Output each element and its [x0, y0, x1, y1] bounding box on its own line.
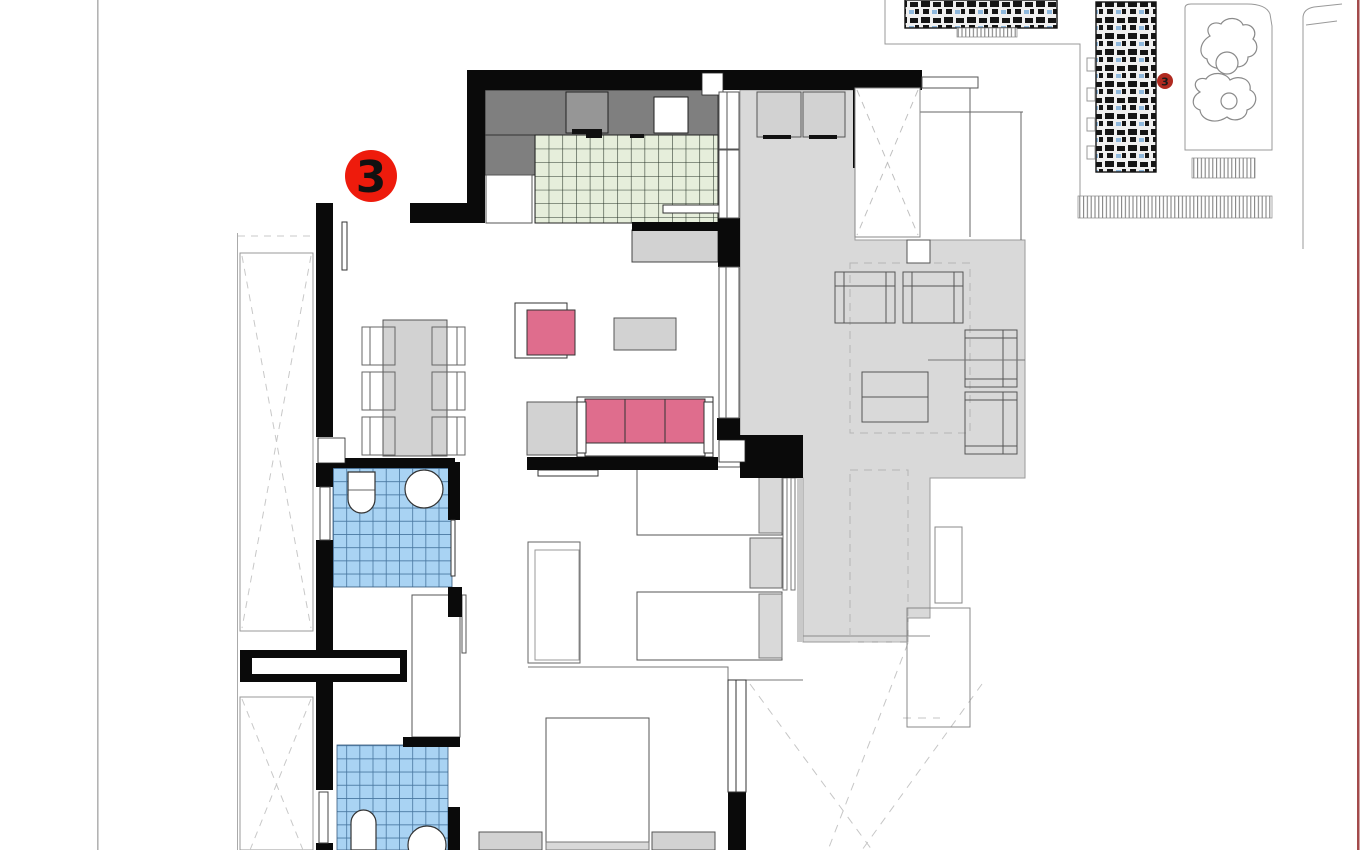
- wall: [448, 462, 460, 520]
- washbasin: [405, 470, 443, 508]
- wall: [728, 792, 746, 850]
- cooktop-edge: [572, 129, 602, 134]
- coffee-table: [614, 318, 676, 350]
- building-block-a: [905, 0, 1057, 28]
- kitchen-island: [632, 230, 718, 262]
- wall: [316, 463, 333, 487]
- terrace-side-wall: [797, 478, 803, 642]
- site-unit-marker[interactable]: 3: [1157, 73, 1173, 89]
- kitchen-shelf: [663, 205, 720, 213]
- unit-marker-label: 3: [356, 152, 387, 203]
- terrace-cabinet: [757, 92, 801, 137]
- window-frame: [783, 478, 787, 590]
- wall: [410, 203, 468, 223]
- window: [728, 680, 746, 792]
- bed-pillow: [759, 594, 782, 658]
- dining-table: [383, 320, 447, 456]
- wall: [470, 70, 922, 90]
- wall: [316, 682, 333, 790]
- door-leaf: [342, 222, 347, 270]
- parking-hatch: [1078, 196, 1272, 218]
- wall: [718, 218, 740, 267]
- bed-foot: [546, 842, 649, 850]
- left-closets: [238, 233, 314, 850]
- nightstand: [750, 538, 782, 588]
- door-opening: [719, 440, 745, 462]
- door-leaf: [451, 520, 455, 576]
- armchair-cushion: [527, 310, 575, 355]
- toilet: [348, 472, 375, 513]
- kitchen-cabinet-white: [486, 175, 532, 223]
- column: [907, 240, 930, 263]
- railing: [922, 77, 978, 88]
- closet-outline: [240, 253, 313, 631]
- wall: [448, 587, 462, 617]
- wall: [316, 203, 333, 437]
- side-table: [527, 402, 577, 455]
- sofa: [577, 397, 713, 457]
- wall: [527, 457, 718, 470]
- double-bed: [546, 718, 649, 850]
- parking-hatch: [1192, 158, 1255, 178]
- building-block-b: [1096, 2, 1156, 172]
- wall-cavity: [252, 658, 400, 674]
- bathroom-1: [333, 468, 452, 587]
- counter-tick: [630, 134, 644, 138]
- wall: [632, 222, 718, 231]
- wall: [333, 458, 455, 468]
- wall: [740, 435, 803, 478]
- closet-outline: [240, 697, 313, 850]
- cabinet-tick: [809, 135, 837, 139]
- sliding-door: [719, 267, 739, 418]
- kitchen-sink: [654, 97, 688, 133]
- page-left-edge: [97, 0, 99, 850]
- door-leaf: [462, 595, 466, 653]
- sliding-door: [719, 92, 739, 149]
- page-right-edge: [1357, 0, 1360, 850]
- pool-circle: [1221, 93, 1237, 109]
- bathroom-2: [337, 745, 448, 850]
- parking-hatch: [957, 28, 1017, 37]
- terrace-cabinet: [803, 92, 845, 137]
- floor-plan-sheet: 3 3: [0, 0, 1360, 850]
- wardrobe-inner: [535, 550, 579, 660]
- bed-pillow: [759, 469, 782, 533]
- counter-tick: [586, 134, 602, 138]
- wall-niche: [318, 438, 345, 463]
- door-leaf: [319, 792, 328, 843]
- kitchen-counter-left: [485, 135, 535, 175]
- window: [320, 487, 330, 540]
- cabinet-tick: [763, 135, 791, 139]
- site-unit-marker-label: 3: [1161, 76, 1169, 89]
- wall: [448, 807, 460, 850]
- toilet: [351, 810, 376, 850]
- wall: [717, 418, 740, 440]
- window-frame: [791, 478, 795, 590]
- plan-drawing: 3 3: [0, 0, 1360, 850]
- wall: [316, 540, 333, 652]
- sliding-door: [719, 150, 739, 218]
- nightstand: [479, 832, 542, 850]
- sideboard-strip: [538, 470, 598, 476]
- wall: [316, 843, 333, 850]
- nightstand: [652, 832, 715, 850]
- cooktop: [566, 92, 608, 133]
- wall: [403, 737, 460, 747]
- wall: [467, 70, 485, 223]
- pool-circle: [1216, 52, 1238, 74]
